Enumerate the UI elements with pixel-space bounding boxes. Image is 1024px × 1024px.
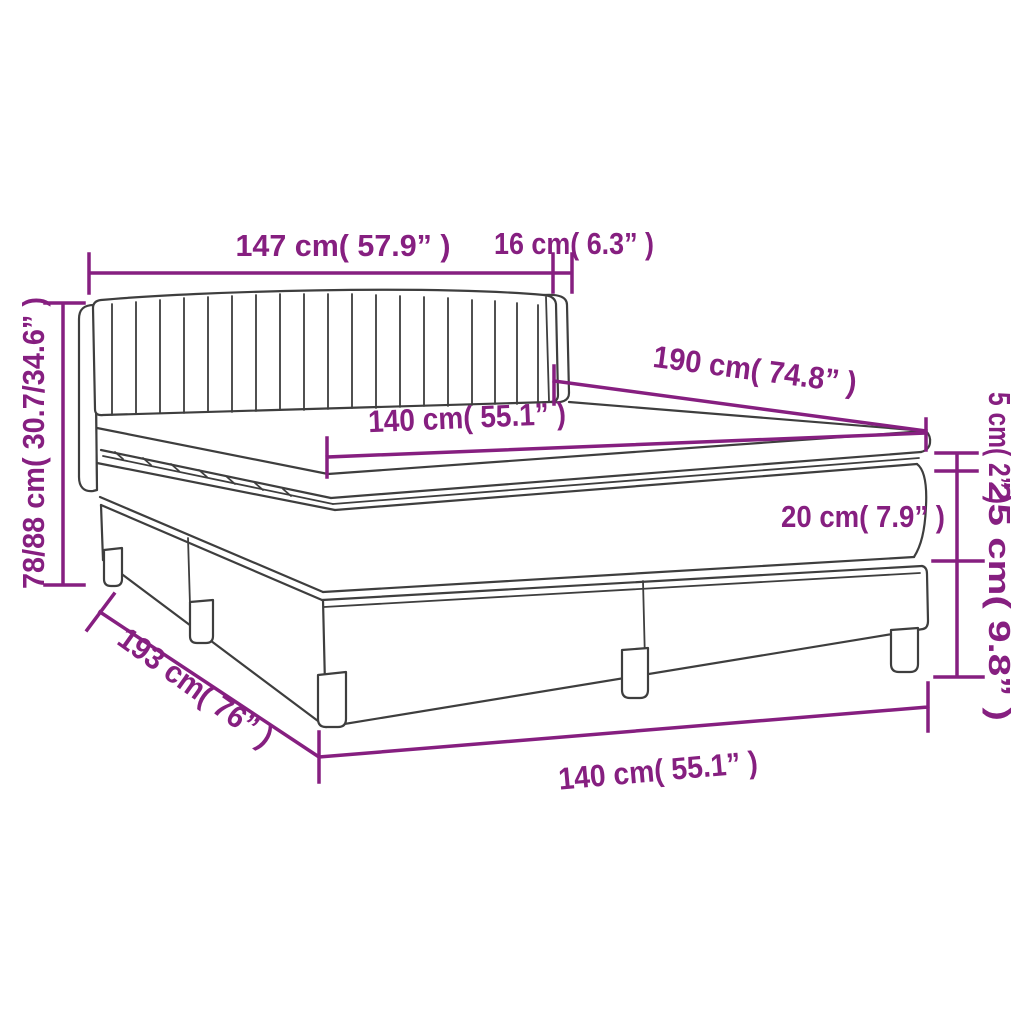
headboard-panel [93, 290, 558, 415]
topper-piping-near [103, 456, 333, 504]
mattress-top-near [97, 463, 335, 510]
topper-bottom-front [331, 452, 921, 498]
topper-piping-front [333, 458, 919, 504]
topper-bottom-near [101, 450, 331, 498]
base-top-piping [324, 573, 920, 607]
base-left-edge [101, 505, 103, 560]
bed-leg-front-corner [318, 672, 346, 727]
label-headboard-width: 147 cm( 57.9” ) [236, 228, 451, 263]
base-right-edge [922, 566, 928, 629]
bed-dimension-diagram: 147 cm( 57.9” ) 16 cm( 6.3” ) 78/88 cm( … [0, 0, 1024, 1024]
label-mattress-thickness: 20 cm( 7.9” ) [781, 499, 945, 534]
label-height-range: 78/88 cm( 30.7/34.6” ) [16, 297, 51, 589]
bed-leg-mid-left [190, 600, 213, 643]
mattress-bottom-front [323, 557, 914, 592]
label-base-height: 25 cm( 9.8” ) [982, 481, 1017, 721]
label-bed-length: 190 cm( 74.8” ) [651, 339, 859, 400]
base-seam-near [188, 538, 190, 605]
label-headboard-side-depth: 16 cm( 6.3” ) [494, 226, 654, 261]
label-mattress-width-top: 140 cm( 55.1” ) [367, 396, 566, 440]
diagram-canvas: 147 cm( 57.9” ) 16 cm( 6.3” ) 78/88 cm( … [0, 0, 1024, 1024]
bed-leg-front-middle [622, 648, 648, 698]
mattress-bottom-near [100, 497, 323, 592]
mattress-deck-near-edge [97, 428, 328, 474]
base-top-front [322, 566, 922, 600]
dim-thickness-stack [933, 453, 983, 677]
label-mattress-width-bottom: 140 cm( 55.1” ) [557, 744, 759, 796]
base-top-near [101, 505, 322, 600]
bed-leg-front-right [891, 628, 918, 672]
bed-leg-rear-left [104, 548, 122, 586]
